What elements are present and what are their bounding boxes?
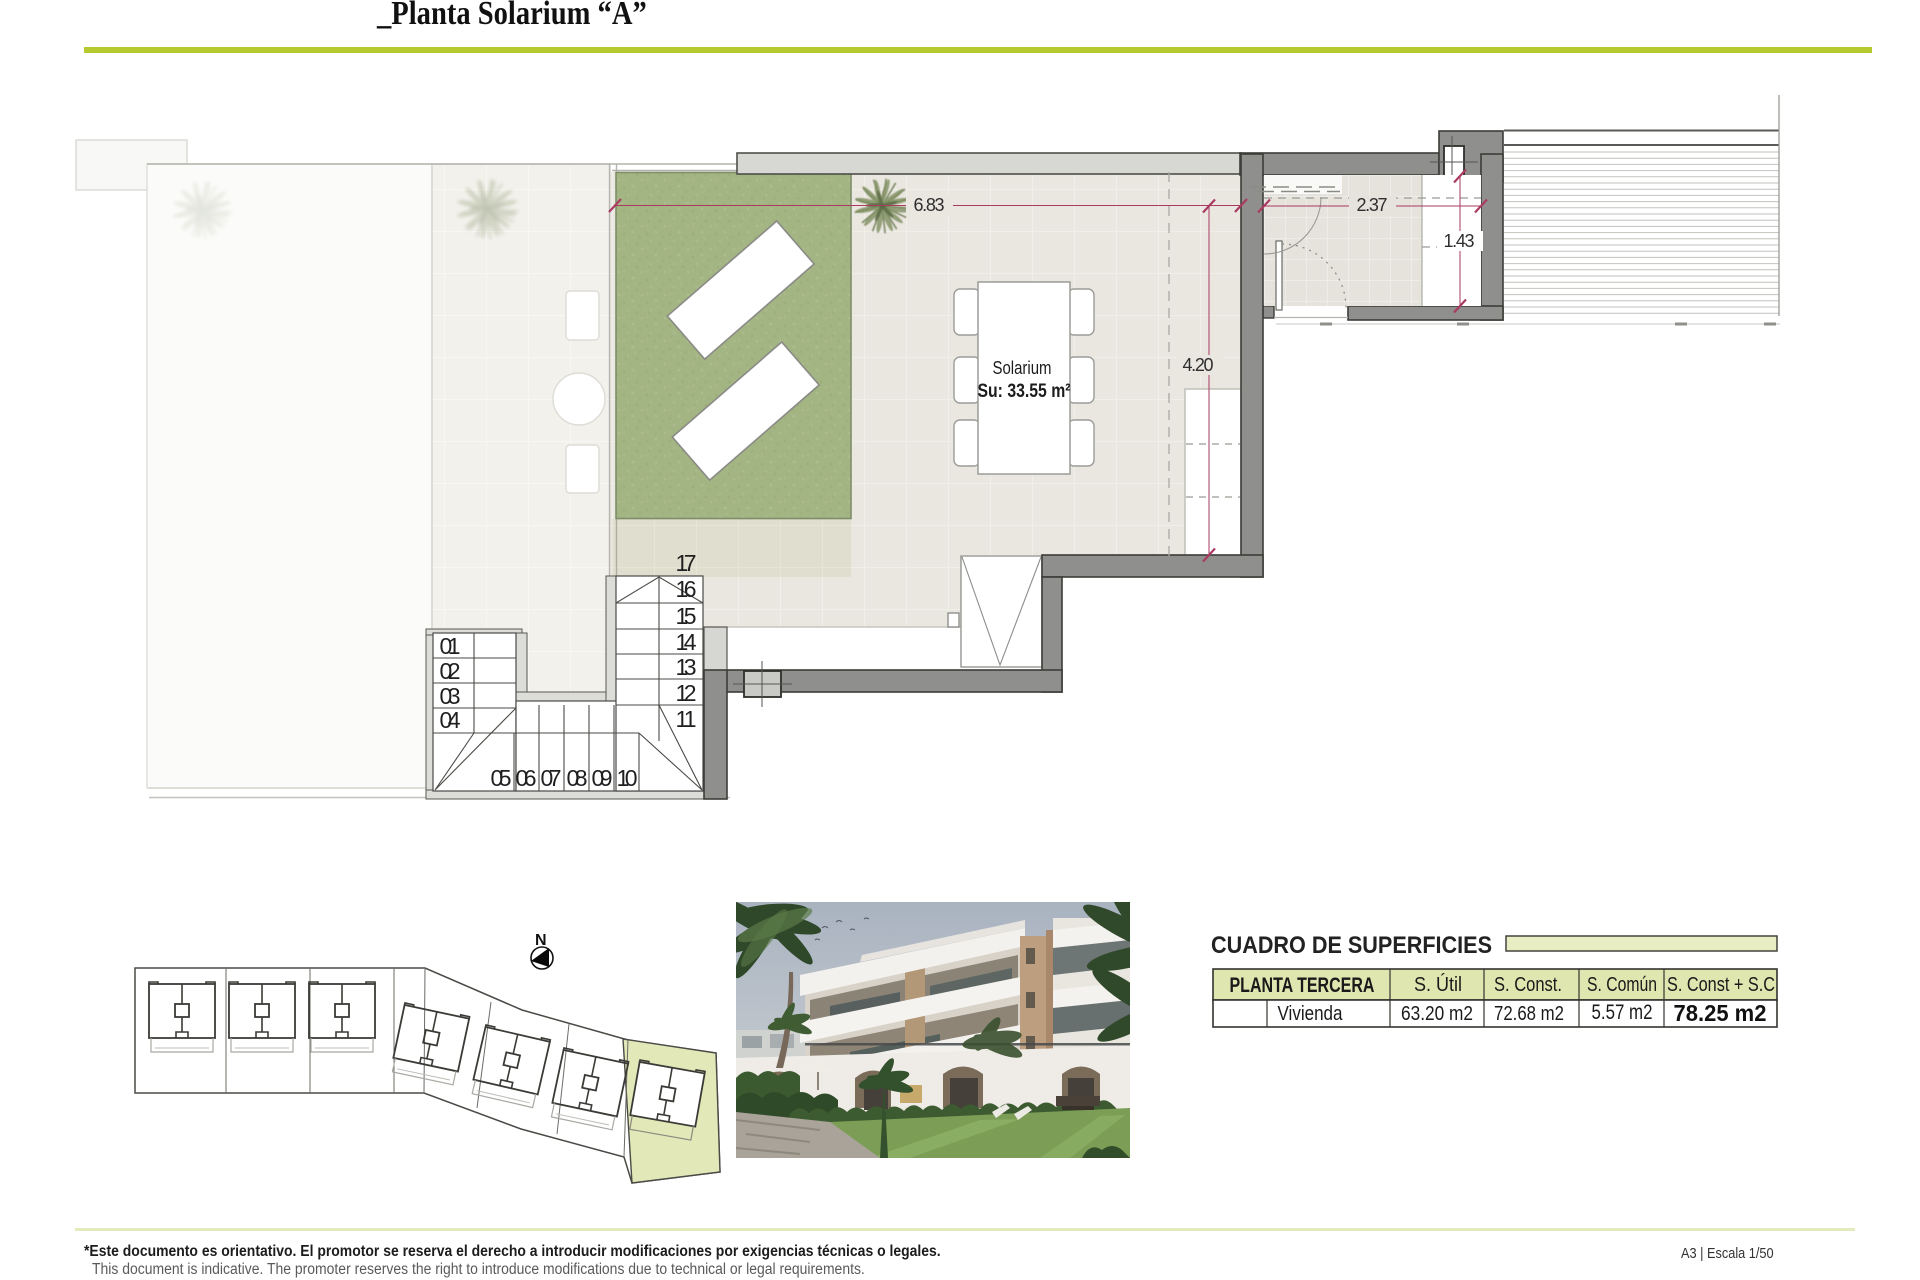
svg-text:5.57 m2: 5.57 m2 — [1592, 1001, 1653, 1024]
svg-text:10: 10 — [617, 765, 638, 791]
svg-text:08: 08 — [567, 765, 588, 791]
svg-text:CUADRO DE SUPERFICIES: CUADRO DE SUPERFICIES — [1211, 932, 1492, 959]
svg-text:16: 16 — [676, 576, 697, 602]
svg-text:09: 09 — [592, 765, 613, 791]
svg-text:02: 02 — [440, 658, 461, 684]
svg-text:07: 07 — [541, 765, 562, 791]
svg-text:04: 04 — [440, 707, 461, 733]
svg-text:S. Común: S. Común — [1587, 974, 1657, 996]
svg-text:15: 15 — [676, 603, 697, 629]
svg-text:03: 03 — [440, 683, 461, 709]
svg-text:S. Útil: S. Útil — [1414, 973, 1462, 996]
svg-text:S. Const.: S. Const. — [1494, 974, 1562, 996]
svg-text:13: 13 — [676, 654, 697, 680]
svg-text:6.83: 6.83 — [914, 195, 945, 215]
svg-text:Solarium: Solarium — [993, 358, 1052, 378]
svg-text:63.20 m2: 63.20 m2 — [1401, 1003, 1473, 1025]
svg-text:78.25 m2: 78.25 m2 — [1674, 1000, 1767, 1026]
svg-text:Vivienda: Vivienda — [1278, 1003, 1344, 1025]
svg-text:4.20: 4.20 — [1183, 355, 1214, 375]
svg-text:PLANTA TERCERA: PLANTA TERCERA — [1230, 974, 1375, 997]
svg-text:1.43: 1.43 — [1444, 231, 1475, 251]
svg-text:Su: 33.55 m²: Su: 33.55 m² — [978, 381, 1071, 402]
svg-text:2.37: 2.37 — [1357, 195, 1388, 215]
svg-text:17: 17 — [676, 550, 697, 576]
svg-text:01: 01 — [440, 633, 461, 659]
svg-text:11: 11 — [676, 706, 697, 732]
svg-text:72.68 m2: 72.68 m2 — [1494, 1003, 1564, 1025]
svg-text:S. Const + S.C: S. Const + S.C — [1667, 974, 1775, 996]
svg-text:05: 05 — [491, 765, 512, 791]
svg-text:12: 12 — [676, 680, 697, 706]
svg-text:06: 06 — [516, 765, 537, 791]
svg-text:14: 14 — [676, 629, 697, 655]
